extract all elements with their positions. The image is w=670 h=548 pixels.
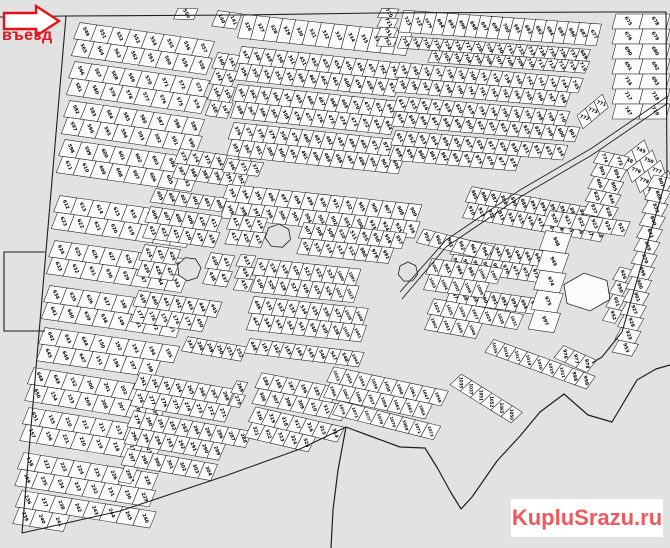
watermark-text: KupluSrazu.ru xyxy=(512,505,662,531)
parcel-number: 1037 xyxy=(468,383,473,394)
parcel-number: 1051 xyxy=(479,390,484,401)
plot-map-page: 5495515525535545555565575655645635625615… xyxy=(0,0,670,548)
parcel-number: 1065 xyxy=(499,402,504,413)
parcel-number: 1035 xyxy=(458,377,463,388)
parcel-strip: 550 xyxy=(174,7,198,20)
parcel-strip: 412413414417416415 xyxy=(225,214,268,248)
parcel-number: 1052 xyxy=(489,396,494,407)
parcel-strip: 424425426429428427 xyxy=(137,244,181,281)
parcel-strip: 6756786766796906806916927166937177187477… xyxy=(612,14,670,119)
entrance-label: въезд xyxy=(2,27,53,45)
watermark-badge: KupluSrazu.ru xyxy=(511,499,663,537)
plot-map: 5495515525535545555565575655645635625615… xyxy=(0,0,670,548)
parcel-number: 1050 xyxy=(509,409,514,420)
